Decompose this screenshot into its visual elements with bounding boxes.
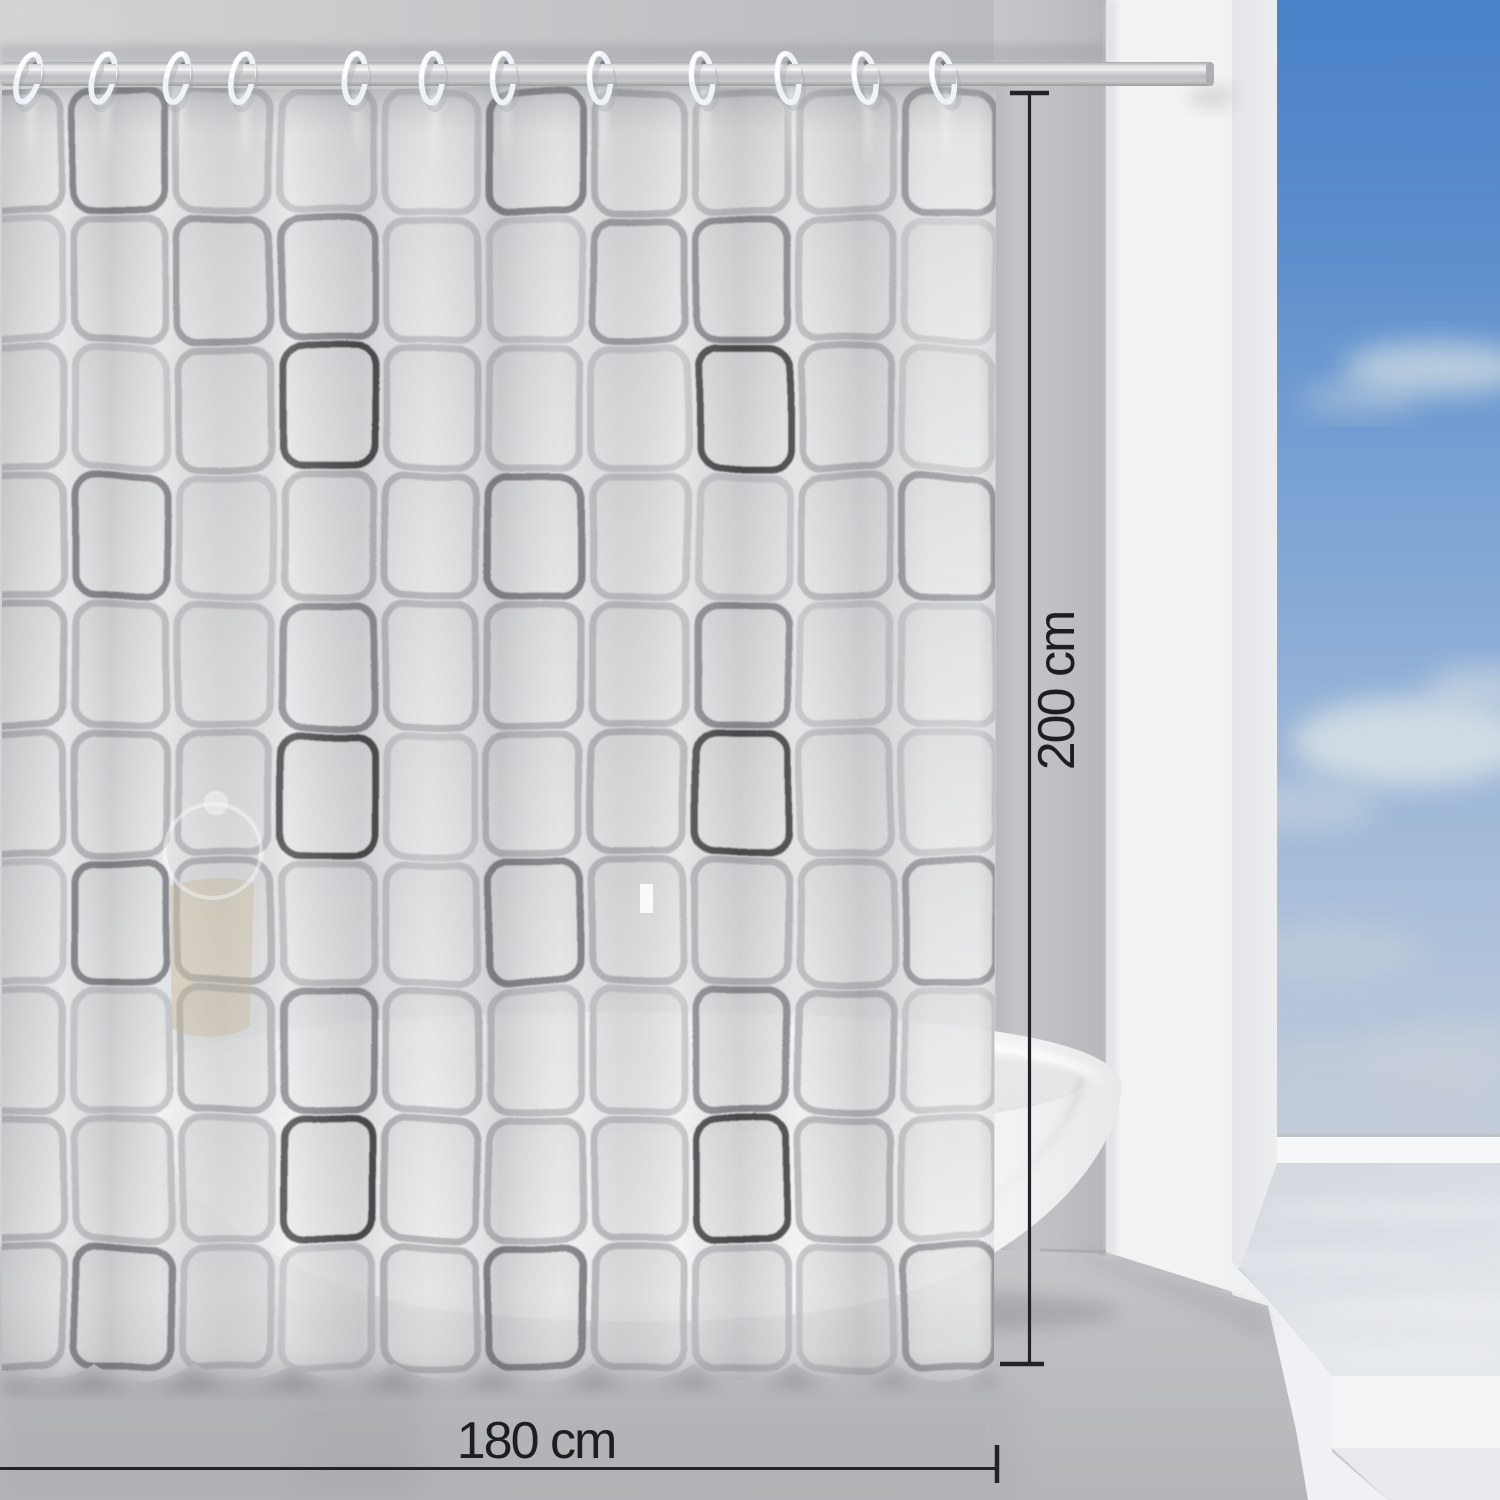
- svg-text:180 cm: 180 cm: [457, 1412, 616, 1470]
- svg-text:200 cm: 200 cm: [1028, 612, 1086, 771]
